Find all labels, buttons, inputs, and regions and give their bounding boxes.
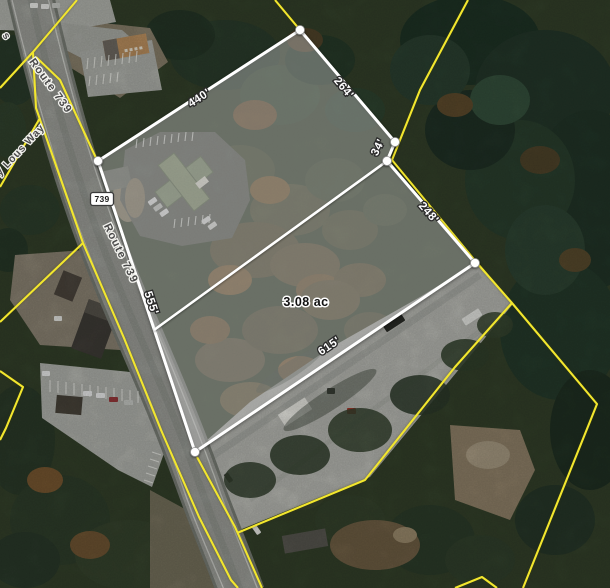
vertex-dot-southwest	[191, 448, 200, 457]
vertex-dot-southeast	[471, 259, 480, 268]
vertex-dot-north	[296, 26, 305, 35]
vertex-dot-northeast	[391, 138, 400, 147]
vertex-dot-west	[94, 157, 103, 166]
map-canvas[interactable]: 440' 264' 34' 248' 555' 615' 3.08 ac Rou…	[0, 0, 610, 588]
aerial-parcel-map[interactable]: 440' 264' 34' 248' 555' 615' 3.08 ac Rou…	[0, 0, 610, 588]
route-shield-number: 739	[94, 194, 109, 204]
route-739-shield: 739	[91, 193, 114, 206]
vertex-dot-east-jog	[383, 157, 392, 166]
parcel-area-label: 3.08 ac	[283, 295, 328, 309]
